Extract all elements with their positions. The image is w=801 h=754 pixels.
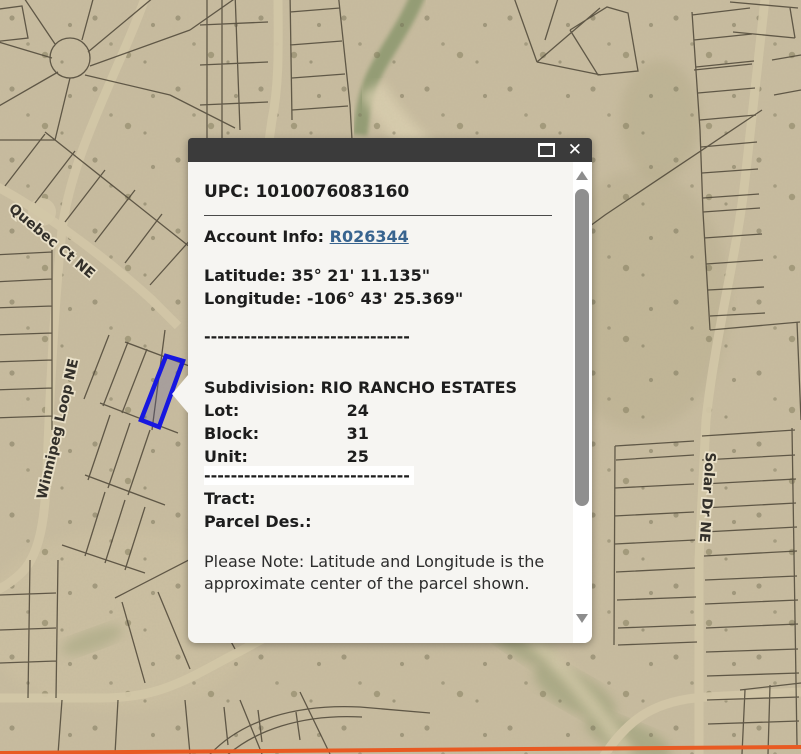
upc-label: UPC: bbox=[204, 182, 250, 202]
parcel-des-line: Parcel Des.: bbox=[204, 510, 562, 533]
close-icon[interactable]: ✕ bbox=[568, 142, 582, 159]
maximize-icon[interactable] bbox=[538, 143, 555, 157]
popup-content: UPC: 1010076083160 Account Info: R026344… bbox=[188, 162, 592, 643]
coordinates-block: Latitude: 35° 21' 11.135" Longitude: -10… bbox=[204, 264, 562, 310]
scroll-down-icon[interactable] bbox=[576, 614, 588, 623]
parcel-des-label: Parcel Des.: bbox=[204, 512, 312, 531]
divider bbox=[204, 215, 552, 216]
scroll-up-icon[interactable] bbox=[576, 171, 588, 180]
popup-pointer bbox=[172, 375, 188, 413]
subdivision-label: Subdivision: bbox=[204, 378, 315, 397]
longitude-label: Longitude: bbox=[204, 289, 301, 308]
lot-value: 24 bbox=[347, 401, 369, 420]
dashed-separator: ------------------------------- bbox=[204, 466, 562, 485]
scrollbar-thumb[interactable] bbox=[575, 189, 589, 506]
block-line: Block: 31 bbox=[204, 422, 562, 445]
upc-line: UPC: 1010076083160 bbox=[204, 181, 562, 204]
account-info-label: Account Info: bbox=[204, 227, 324, 246]
tract-block: Tract: Parcel Des.: bbox=[204, 487, 562, 533]
account-info-link[interactable]: R026344 bbox=[330, 227, 409, 246]
tract-label: Tract: bbox=[204, 489, 255, 508]
upc-value: 1010076083160 bbox=[255, 182, 409, 202]
note-text: Please Note: Latitude and Longitude is t… bbox=[204, 551, 549, 595]
lot-line: Lot: 24 bbox=[204, 399, 562, 422]
block-label: Block: bbox=[204, 422, 341, 445]
subdivision-line: Subdivision: RIO RANCHO ESTATES bbox=[204, 376, 562, 399]
popup-scrollbar[interactable] bbox=[573, 162, 592, 643]
account-info-line: Account Info: R026344 bbox=[204, 225, 562, 248]
latitude-line: Latitude: 35° 21' 11.135" bbox=[204, 264, 562, 287]
dashed-separator: ------------------------------- bbox=[204, 325, 562, 348]
longitude-value: -106° 43' 25.369" bbox=[307, 289, 463, 308]
gis-parcel-viewer: Quebec Ct NE Winnipeg Loop NE Solar Dr N… bbox=[0, 0, 801, 754]
block-value: 31 bbox=[347, 424, 369, 443]
latitude-label: Latitude: bbox=[204, 266, 286, 285]
tract-line: Tract: bbox=[204, 487, 562, 510]
unit-line: Unit: 25 bbox=[204, 445, 562, 468]
parcel-info-popup: ✕ UPC: 1010076083160 Account Info: R0263… bbox=[188, 138, 592, 643]
unit-value: 25 bbox=[347, 447, 369, 466]
popup-titlebar: ✕ bbox=[188, 138, 592, 162]
latitude-value: 35° 21' 11.135" bbox=[291, 266, 430, 285]
longitude-line: Longitude: -106° 43' 25.369" bbox=[204, 287, 562, 310]
lot-label: Lot: bbox=[204, 399, 341, 422]
unit-label: Unit: bbox=[204, 445, 341, 468]
subdivision-value: RIO RANCHO ESTATES bbox=[321, 378, 517, 397]
